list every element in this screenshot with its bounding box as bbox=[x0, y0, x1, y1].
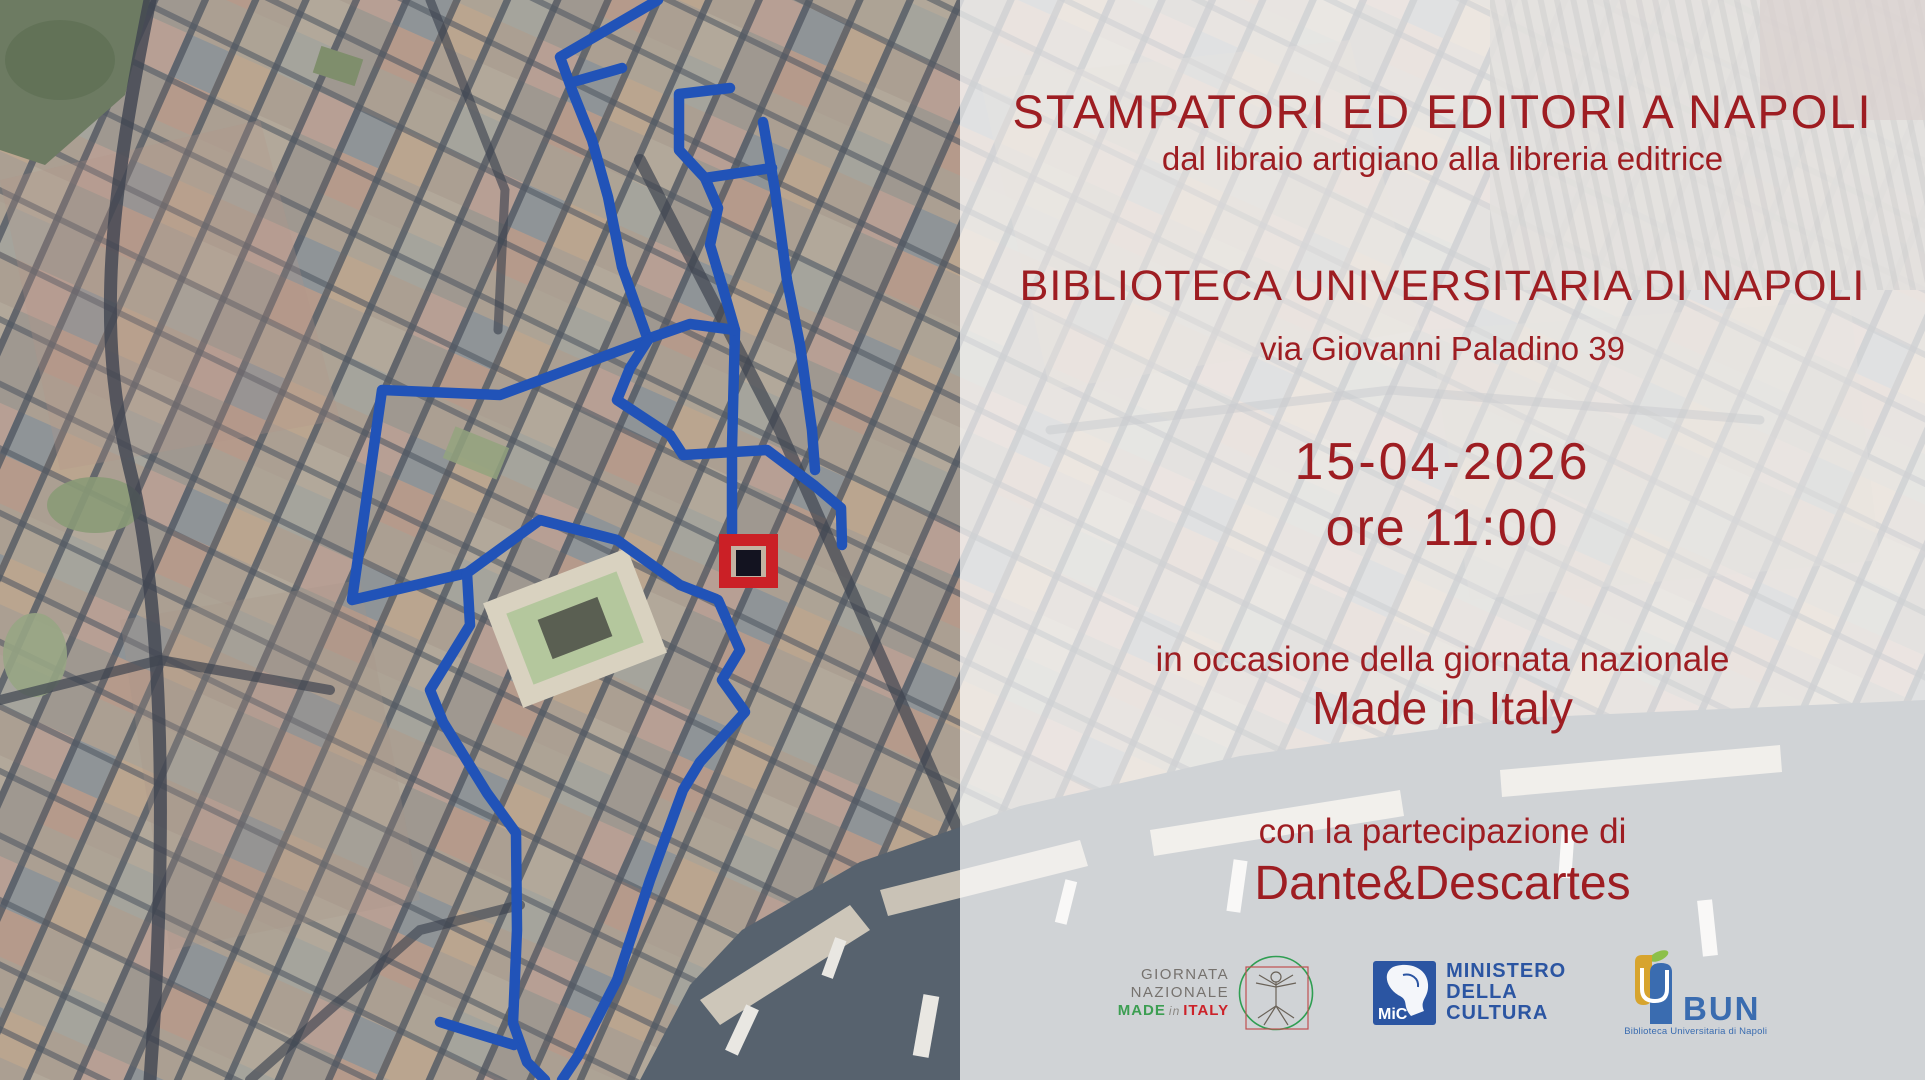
mic-emblem-icon: MiC bbox=[1373, 961, 1436, 1025]
event-date: 15-04-2026 bbox=[960, 432, 1925, 492]
occasion-name: Made in Italy bbox=[960, 681, 1925, 735]
bun-emblem-icon bbox=[1631, 948, 1677, 1024]
made-label: MADE bbox=[1118, 1002, 1166, 1020]
mic-acronym: MiC bbox=[1378, 1006, 1408, 1023]
event-time: ore 11:00 bbox=[960, 498, 1925, 558]
giornata-line2: NAZIONALE bbox=[1131, 984, 1230, 1002]
mic-line3: CULTURA bbox=[1446, 1003, 1566, 1024]
bun-caption: Biblioteca Universitaria di Napoli bbox=[1624, 1026, 1767, 1037]
ministero-cultura-logo: MiC MINISTERO DELLA CULTURA bbox=[1373, 961, 1566, 1025]
announcement-panel: STAMPATORI ED EDITORI A NAPOLI dal libra… bbox=[960, 0, 1925, 1080]
event-flyer: STAMPATORI ED EDITORI A NAPOLI dal libra… bbox=[0, 0, 1925, 1080]
mic-line1: MINISTERO bbox=[1446, 961, 1566, 982]
in-label: in bbox=[1169, 1002, 1180, 1020]
italy-label: ITALY bbox=[1183, 1002, 1229, 1020]
participation-line: con la partecipazione di bbox=[960, 812, 1925, 852]
event-title: STAMPATORI ED EDITORI A NAPOLI bbox=[960, 84, 1925, 139]
occasion-line: in occasione della giornata nazionale bbox=[960, 640, 1925, 680]
destination-marker bbox=[719, 534, 778, 588]
venue-name: BIBLIOTECA UNIVERSITARIA DI NAPOLI bbox=[960, 262, 1925, 311]
bun-acronym: BUN bbox=[1683, 994, 1761, 1024]
mic-line2: DELLA bbox=[1446, 982, 1566, 1003]
logos-row: GIORNATA NAZIONALE MADE in ITALY bbox=[960, 948, 1925, 1037]
giornata-line1: GIORNATA bbox=[1141, 966, 1229, 984]
guest-name: Dante&Descartes bbox=[960, 856, 1925, 911]
vitruvian-man-icon bbox=[1237, 954, 1315, 1032]
bun-logo: BUN Biblioteca Universitaria di Napoli bbox=[1624, 948, 1767, 1037]
venue-address: via Giovanni Paladino 39 bbox=[960, 330, 1925, 368]
giornata-nazionale-logo: GIORNATA NAZIONALE MADE in ITALY bbox=[1118, 954, 1315, 1032]
event-subtitle: dal libraio artigiano alla libreria edit… bbox=[960, 140, 1925, 178]
